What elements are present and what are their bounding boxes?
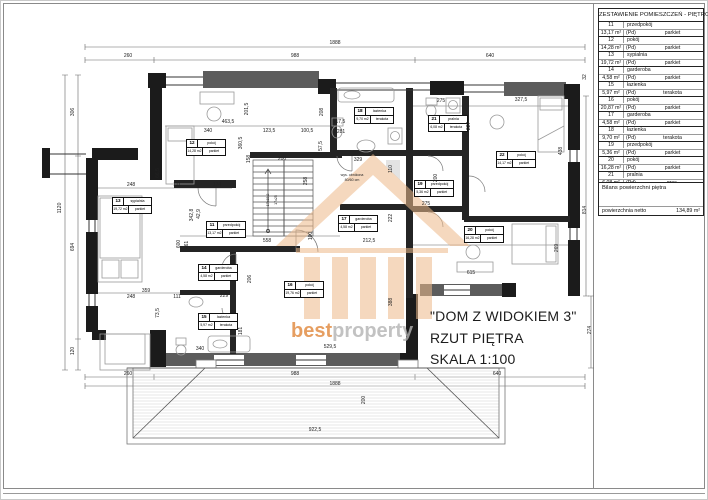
room-name: przedpokój xyxy=(426,181,453,188)
room-number: 21 xyxy=(429,116,440,123)
summary-row-19: 19przedpokój5,36 m²(Pd)parkiet xyxy=(599,142,703,157)
logo-wordmark: bestproperty xyxy=(291,320,413,343)
dimension-label: 329 xyxy=(354,157,362,163)
summary-row-18: 18łazienka9,70 m²(Pd)terakota xyxy=(599,127,703,142)
summary-room-name: łazienka xyxy=(624,127,703,133)
room-label-20: 20pokój16,28 m2parkiet xyxy=(464,226,504,243)
room-label-15: 15łazienka5,97 m2terakota xyxy=(198,313,238,330)
summary-room-number: 20 xyxy=(599,157,624,163)
room-number: 18 xyxy=(355,108,366,115)
summary-floor-code: (Pd) xyxy=(624,150,642,156)
balance-value: 134,89 m² xyxy=(676,208,700,214)
dimension-label: 181 xyxy=(238,327,244,335)
summary-room-name: garderoba xyxy=(624,112,703,118)
room-name: pokój xyxy=(296,282,323,289)
dimension-label: 260 xyxy=(124,371,132,377)
summary-room-finish: terakota xyxy=(642,135,703,141)
dimension-label: 123,5 xyxy=(263,128,276,134)
dimension-label: 73,5 xyxy=(155,308,161,318)
summary-room-area: 13,17 m² xyxy=(599,30,624,36)
room-label-22: 22pokój14,17 m2parkiet xyxy=(496,151,536,168)
washer-icon xyxy=(446,98,460,113)
summary-room-area: 20,87 m² xyxy=(599,105,624,111)
dimension-label: 694 xyxy=(70,243,76,251)
room-area: 14,17 m2 xyxy=(497,160,513,167)
title-block: "DOM Z WIDOKIEM 3" RZUT PIĘTRA SKALA 1:1… xyxy=(430,306,577,371)
room-area: 19,76 m2 xyxy=(285,290,301,297)
summary-room-name: garderoba xyxy=(624,67,703,73)
dimension-label: 988 xyxy=(291,53,299,59)
summary-room-area: 4,58 m² xyxy=(599,75,624,81)
dimension-label: 417,5 xyxy=(333,119,346,125)
summary-floor-code: (Pd) xyxy=(624,45,642,51)
room-finish: parkiet xyxy=(355,224,377,231)
dimension-label: 248 xyxy=(127,182,135,188)
summary-floor-code: (Pd) xyxy=(624,75,642,81)
desk-chair-icon xyxy=(457,245,493,272)
room-label-11: 11przedpokój13,17 m2parkiet xyxy=(206,221,246,238)
dimension-label: 111 xyxy=(173,182,181,188)
room-label-12: 12pokój14,28 m2parkiet xyxy=(186,139,226,156)
summary-room-number: 11 xyxy=(599,22,624,28)
room-label-19: 19przedpokój5,36 m2parkiet xyxy=(414,180,454,197)
summary-row-12: 12pokój14,28 m²(Pd)parkiet xyxy=(599,37,703,52)
dimension-label: 438 xyxy=(558,147,564,155)
dimension-label: 1888 xyxy=(329,381,340,387)
summary-floor-code: (Pd) xyxy=(624,105,642,111)
room-label-21: 21pralnia6,08 m2terakota xyxy=(428,115,468,132)
summary-room-number: 15 xyxy=(599,82,624,88)
summary-room-area: 5,97 m² xyxy=(599,90,624,96)
room-label-18: 18łazienka9,70 m2terakota xyxy=(354,107,394,124)
room-number: 15 xyxy=(199,314,210,321)
room-area: 5,97 m2 xyxy=(199,322,215,329)
room-name: pralnia xyxy=(440,116,467,123)
room-area: 19,72 m2 xyxy=(113,206,129,213)
summary-room-number: 12 xyxy=(599,37,624,43)
summary-room-area: 9,70 m² xyxy=(599,135,624,141)
summary-floor-code: (Pd) xyxy=(624,135,642,141)
summary-row-13: 13sypialnia19,72 m²(Pd)parkiet xyxy=(599,52,703,67)
dimension-label: 340 xyxy=(196,346,204,352)
dimension-label: 201,5 xyxy=(244,103,250,116)
dimension-label: 200 xyxy=(278,156,286,162)
summary-room-finish: parkiet xyxy=(642,60,703,66)
dimension-label: 275 xyxy=(437,98,445,104)
summary-room-area: 5,36 m² xyxy=(599,150,624,156)
room-label-13: 13sypialnia19,72 m2parkiet xyxy=(112,197,152,214)
dimension-label: 258 xyxy=(303,177,309,185)
summary-room-number: 14 xyxy=(599,67,624,73)
balance-row: powierzchnia netto 134,89 m² xyxy=(599,206,703,215)
room-label-14: 14garderoba4,58 m2parkiet xyxy=(198,264,238,281)
dimension-label: 615 xyxy=(467,270,475,276)
dimension-label: 342,8 xyxy=(189,209,195,222)
room-name: sypialnia xyxy=(124,198,151,205)
summary-room-name: pokój xyxy=(624,97,703,103)
summary-room-finish: parkiet xyxy=(642,30,703,36)
summary-row-16: 16pokój20,87 m²(Pd)parkiet xyxy=(599,97,703,112)
room-finish: terakota xyxy=(371,116,393,123)
dimension-label: 463,5 xyxy=(222,119,235,125)
room-summary-rows: 11przedpokój13,17 m²(Pd)parkiet12pokój14… xyxy=(599,22,703,201)
dimension-label: 359 xyxy=(142,288,150,294)
room-number: 14 xyxy=(199,265,210,272)
room-number: 12 xyxy=(187,140,198,147)
dimension-label: 340 xyxy=(204,128,212,134)
summary-floor-code: (Pd) xyxy=(624,60,642,66)
dimension-label: 640 xyxy=(486,53,494,59)
plan-note: 17x25 xyxy=(274,195,278,205)
room-name: łazienka xyxy=(210,314,237,321)
dimension-label: 100,5 xyxy=(301,128,314,134)
room-finish: parkiet xyxy=(215,273,237,280)
room-name: przedpokój xyxy=(218,222,245,229)
room-finish: terakota xyxy=(215,322,237,329)
summary-row-15: 15łazienka5,97 m²(Pd)terakota xyxy=(599,82,703,97)
toilet-icon xyxy=(176,338,186,355)
room-area: 5,36 m2 xyxy=(415,189,431,196)
area-balance-box: Bilans powierzchni piętra powierzchnia n… xyxy=(598,182,704,216)
summary-room-area: 16,28 m² xyxy=(599,165,624,171)
summary-room-name: pralnia xyxy=(624,172,703,178)
dimension-label: 206 xyxy=(247,275,253,283)
dimension-label: 42,9 xyxy=(196,209,202,219)
room-finish: parkiet xyxy=(203,148,225,155)
summary-floor-code: (Pd) xyxy=(624,165,642,171)
room-area: 13,17 m2 xyxy=(207,230,223,237)
summary-room-area: 14,28 m² xyxy=(599,45,624,51)
washer-icon xyxy=(388,128,402,144)
dimension-label: 158 xyxy=(246,155,252,163)
summary-room-finish: terakota xyxy=(642,90,703,96)
dimension-label: 461 xyxy=(184,241,190,249)
room-label-17: 17garderoba4,58 m2parkiet xyxy=(338,215,378,232)
room-name: pokój xyxy=(198,140,225,147)
room-finish: terakota xyxy=(445,124,467,131)
plan-note: 17x18,2 xyxy=(266,194,270,207)
summary-room-number: 18 xyxy=(599,127,624,133)
desk-chair-icon xyxy=(490,115,504,129)
summary-room-area: 4,58 m² xyxy=(599,120,624,126)
logo-best-text: best xyxy=(291,320,332,342)
room-label-16: 16pokój19,76 m2parkiet xyxy=(284,281,324,298)
summary-room-name: pokój xyxy=(624,157,703,163)
dimension-label: 306 xyxy=(70,108,76,116)
room-name: pokój xyxy=(476,227,503,234)
summary-room-finish: parkiet xyxy=(642,75,703,81)
room-number: 11 xyxy=(207,222,218,229)
bathtub-icon xyxy=(208,336,250,352)
room-number: 20 xyxy=(465,227,476,234)
dimension-label: 327,5 xyxy=(515,97,528,103)
dimension-label: 222 xyxy=(388,214,394,222)
summary-floor-code: (Pd) xyxy=(624,30,642,36)
room-summary-table: ZESTAWIENIE POMIESZCZEŃ - PIĘTRO 11przed… xyxy=(598,8,704,202)
dimension-label: 281 xyxy=(337,129,345,135)
summary-room-name: pokój xyxy=(624,37,703,43)
summary-room-name: sypialnia xyxy=(624,52,703,58)
summary-room-number: 19 xyxy=(599,142,624,148)
dimension-label: 111 xyxy=(173,294,181,300)
summary-room-finish: parkiet xyxy=(642,165,703,171)
room-area: 14,28 m2 xyxy=(187,148,203,155)
summary-floor-code: (Pd) xyxy=(624,120,642,126)
dimension-label: 640 xyxy=(493,371,501,377)
summary-room-number: 16 xyxy=(599,97,624,103)
dimension-label: 200 xyxy=(361,396,367,404)
stairs xyxy=(253,160,313,236)
dimension-label: 57,5 xyxy=(318,141,324,151)
room-area: 4,58 m2 xyxy=(199,273,215,280)
plan-note: 80/60 cm xyxy=(345,178,360,182)
summary-row-11: 11przedpokój13,17 m²(Pd)parkiet xyxy=(599,22,703,37)
room-number: 13 xyxy=(113,198,124,205)
plan-note: wys. obniżona xyxy=(341,173,364,177)
summary-room-name: przedpokój xyxy=(624,142,703,148)
room-area: 16,28 m2 xyxy=(465,235,481,242)
dimension-label: 269 xyxy=(554,244,560,252)
room-number: 22 xyxy=(497,152,508,159)
dimension-label: 174 xyxy=(213,182,221,188)
dimension-label: 200 xyxy=(433,174,439,182)
dimension-label: 600 xyxy=(176,240,182,248)
room-finish: parkiet xyxy=(129,206,151,213)
dimension-label: 275 xyxy=(422,201,430,207)
summary-row-20: 20pokój16,28 m²(Pd)parkiet xyxy=(599,157,703,172)
dimension-label: 814 xyxy=(582,206,588,214)
dimension-label: 260 xyxy=(124,53,132,59)
dimension-label: 110 xyxy=(388,165,394,173)
dimension-label: 100 xyxy=(308,232,314,240)
room-finish: parkiet xyxy=(431,189,453,196)
room-finish: parkiet xyxy=(513,160,535,167)
room-name: garderoba xyxy=(210,265,237,272)
summary-room-number: 13 xyxy=(599,52,624,58)
room-name: pokój xyxy=(508,152,535,159)
dimension-label: 66,5 xyxy=(155,168,161,178)
room-finish: parkiet xyxy=(223,230,245,237)
dimension-label: 274 xyxy=(587,326,593,334)
room-area: 4,58 m2 xyxy=(339,224,355,231)
dimension-label: 248 xyxy=(127,294,135,300)
summary-room-name: przedpokój xyxy=(624,22,703,28)
balance-title: Bilans powierzchni piętra xyxy=(599,183,703,191)
summary-room-number: 21 xyxy=(599,172,624,178)
logo-property-text: property xyxy=(332,320,413,342)
dimension-label: 229 xyxy=(220,293,228,299)
dimension-label: 360,5 xyxy=(238,137,244,150)
project-title: "DOM Z WIDOKIEM 3" xyxy=(430,306,577,328)
drawing-name: RZUT PIĘTRA xyxy=(430,328,577,350)
desk-chair-icon xyxy=(200,92,234,121)
dimension-label: 1888 xyxy=(329,40,340,46)
summary-room-area: 19,72 m² xyxy=(599,60,624,66)
window-lines xyxy=(50,77,577,306)
summary-room-name: łazienka xyxy=(624,82,703,88)
room-number: 17 xyxy=(339,216,350,223)
dimension-label: 212,5 xyxy=(363,238,376,244)
room-name: łazienka xyxy=(366,108,393,115)
drawing-scale: SKALA 1:100 xyxy=(430,349,577,371)
dimension-label: 529,5 xyxy=(324,344,337,350)
room-finish: parkiet xyxy=(301,290,323,297)
summary-room-finish: parkiet xyxy=(642,150,703,156)
room-number: 16 xyxy=(285,282,296,289)
dimension-label: 988 xyxy=(291,371,299,377)
dimension-label: 388 xyxy=(388,298,394,306)
summary-row-17: 17garderoba4,58 m²(Pd)parkiet xyxy=(599,112,703,127)
room-number: 19 xyxy=(415,181,426,188)
dimension-label: 558 xyxy=(263,238,271,244)
dimension-label: 208 xyxy=(319,108,325,116)
room-finish: parkiet xyxy=(481,235,503,242)
summary-room-finish: parkiet xyxy=(642,105,703,111)
summary-room-finish: parkiet xyxy=(642,45,703,51)
sink-icon xyxy=(189,297,203,307)
summary-room-number: 17 xyxy=(599,112,624,118)
summary-row-14: 14garderoba4,58 m²(Pd)parkiet xyxy=(599,67,703,82)
room-name: garderoba xyxy=(350,216,377,223)
room-area: 9,70 m2 xyxy=(355,116,371,123)
terrace-outline xyxy=(100,334,150,370)
drawing-sheet: 11przedpokój13,17 m2parkiet12pokój14,28 … xyxy=(0,0,708,500)
dimension-label: 32 xyxy=(582,74,588,80)
bed-icon xyxy=(512,224,558,264)
room-area: 6,08 m2 xyxy=(429,124,445,131)
bed-icon xyxy=(538,96,564,152)
room-summary-title: ZESTAWIENIE POMIESZCZEŃ - PIĘTRO xyxy=(599,9,703,22)
balance-label: powierzchnia netto xyxy=(602,208,646,214)
dimension-label: 120 xyxy=(70,347,76,355)
summary-room-finish: parkiet xyxy=(642,120,703,126)
dimension-label: 227 xyxy=(466,122,472,130)
summary-floor-code: (Pd) xyxy=(624,90,642,96)
dimension-label: 922,5 xyxy=(309,427,322,433)
dimension-label: 1120 xyxy=(57,203,63,214)
